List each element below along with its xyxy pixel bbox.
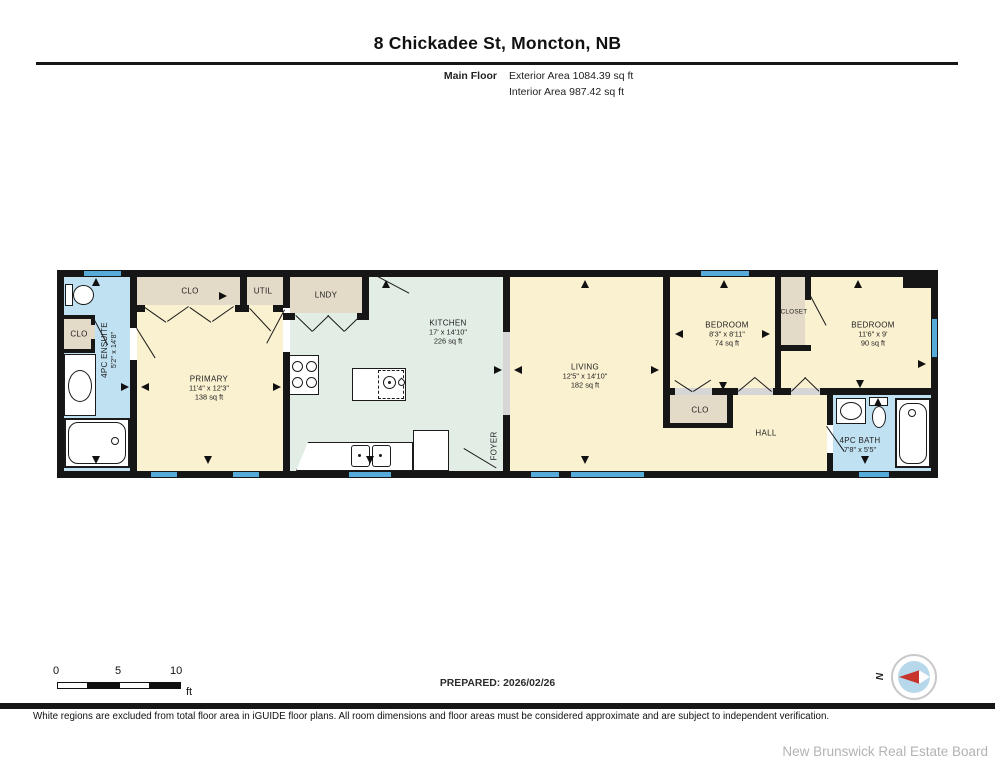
room-bath-dims: 7'8" x 5'5" — [840, 445, 881, 454]
door-threshold — [503, 332, 510, 415]
dimension-arrow-up — [854, 280, 862, 288]
dimension-arrow-down — [719, 382, 727, 390]
room-label-ensuite: 4PC ENSUITE5'2" x 14'8" — [100, 322, 118, 378]
fixture — [358, 454, 361, 457]
fixture — [73, 285, 94, 305]
wall — [820, 388, 931, 395]
floor-label: Main Floor — [444, 70, 497, 82]
room-primary-name: PRIMARY — [189, 375, 229, 384]
wall — [775, 345, 811, 351]
window — [83, 270, 122, 277]
window — [530, 471, 560, 478]
room-bath-name: 4PC BATH — [840, 436, 881, 445]
disclaimer-text: White regions are excluded from total fl… — [33, 711, 829, 722]
dimension-arrow-down — [366, 456, 374, 464]
fixture — [111, 437, 119, 445]
dimension-arrow-down — [856, 380, 864, 388]
dimension-arrow-down — [581, 456, 589, 464]
wall — [503, 277, 510, 332]
page-title: 8 Chickadee St, Moncton, NB — [0, 33, 995, 54]
north-label: N — [875, 673, 886, 680]
room-label-bedroom1: BEDROOM8'3" x 8'11"74 sq ft — [705, 321, 748, 348]
wall — [235, 305, 249, 312]
room-living-name: LIVING — [563, 363, 608, 372]
dimension-arrow-down — [204, 456, 212, 464]
room-living-area: 182 sq ft — [563, 381, 608, 390]
dimension-arrow-right — [121, 383, 129, 391]
wall — [903, 270, 938, 288]
floor-plan: 4PC ENSUITE5'2" x 14'8"CLOCLOUTILPRIMARY… — [57, 270, 938, 478]
wall — [137, 305, 145, 312]
room-primary-dims: 11'4" x 12'3" — [189, 384, 229, 393]
footer-bar — [0, 703, 995, 709]
room-ensuite-dims: 5'2" x 14'8" — [109, 322, 118, 378]
brand-text: New Brunswick Real Estate Board — [782, 744, 988, 759]
dimension-arrow-up — [581, 280, 589, 288]
room-bedroom1-name: BEDROOM — [705, 321, 748, 330]
dimension-arrow-right — [494, 366, 502, 374]
room-kitchen-area: 226 sq ft — [429, 337, 467, 346]
prepared-date: PREPARED: 2026/02/26 — [0, 678, 995, 689]
header-divider — [36, 62, 958, 65]
room-ensuite-name: 4PC ENSUITE — [100, 322, 109, 378]
exterior-area: Exterior Area 1084.39 sq ft — [509, 70, 633, 82]
fixture — [68, 370, 92, 402]
dimension-arrow-right — [762, 330, 770, 338]
fixture — [908, 409, 916, 417]
wall — [827, 395, 833, 425]
wall — [503, 415, 510, 471]
dimension-arrow-up — [92, 278, 100, 286]
fixture — [388, 381, 391, 384]
wall — [283, 277, 290, 308]
fixture — [306, 377, 317, 388]
wall — [663, 277, 670, 428]
fixture — [306, 361, 317, 372]
room-foyer-name: FOYER — [490, 431, 499, 460]
room-bedroom1-dims: 8'3" x 8'11" — [705, 330, 748, 339]
room-kitchen-dims: 17' x 14'10" — [429, 328, 467, 337]
wall — [273, 305, 283, 312]
room-kitchen-name: KITCHEN — [429, 319, 467, 328]
compass-needle-icon — [899, 670, 920, 684]
room-label-clo_primary: CLO — [181, 287, 198, 296]
page: { "header": { "title": "8 Chickadee St, … — [0, 0, 995, 768]
room-label-kitchen: KITCHEN17' x 14'10"226 sq ft — [429, 319, 467, 346]
dimension-arrow-right — [219, 292, 227, 300]
dimension-arrow-up — [382, 280, 390, 288]
interior-area: Interior Area 987.42 sq ft — [509, 86, 624, 98]
scale-tick-10: 10 — [170, 665, 182, 677]
room-label-foyer: FOYER — [490, 431, 499, 460]
room-living-dims: 12'5" x 14'10" — [563, 372, 608, 381]
room-primary-area: 138 sq ft — [189, 393, 229, 402]
room-label-clo_hall: CLO — [691, 406, 708, 415]
wall — [240, 277, 247, 305]
fixture — [872, 406, 886, 428]
room-label-hall: HALL — [755, 429, 776, 438]
window — [931, 318, 938, 358]
room-label-lndy: LNDY — [315, 291, 338, 300]
dimension-arrow-down — [861, 456, 869, 464]
room-util-name: UTIL — [254, 287, 273, 296]
dimension-arrow-up — [874, 398, 882, 406]
wall — [91, 339, 95, 353]
room-bedroom2-dims: 11'6" x 9' — [851, 330, 894, 339]
dimension-arrow-down — [92, 456, 100, 464]
dimension-arrow-left — [514, 366, 522, 374]
wall — [57, 270, 64, 478]
wall — [57, 270, 938, 277]
room-clo_primary-name: CLO — [181, 287, 198, 296]
wall — [130, 277, 137, 328]
wall — [283, 352, 290, 471]
wall — [283, 313, 295, 320]
fixture — [292, 377, 303, 388]
room-label-bath: 4PC BATH7'8" x 5'5" — [840, 436, 881, 454]
fixture — [379, 454, 382, 457]
wall — [130, 360, 137, 471]
scale-tick-0: 0 — [53, 665, 59, 677]
dimension-arrow-right — [273, 383, 281, 391]
room-hall-name: HALL — [755, 429, 776, 438]
fixture — [413, 430, 449, 471]
room-label-util: UTIL — [254, 287, 273, 296]
dimension-arrow-left — [141, 383, 149, 391]
room-lndy-name: LNDY — [315, 291, 338, 300]
dimension-arrow-right — [918, 360, 926, 368]
wall — [663, 388, 675, 395]
room-label-closet: CLOSET — [781, 309, 808, 316]
scale-tick-5: 5 — [115, 665, 121, 677]
window — [348, 471, 392, 478]
room-closet-name: CLOSET — [781, 309, 808, 316]
room-label-primary: PRIMARY11'4" x 12'3"138 sq ft — [189, 375, 229, 402]
window — [858, 471, 890, 478]
room-bedroom2-name: BEDROOM — [851, 321, 894, 330]
room-clo_ensuite-name: CLO — [70, 330, 87, 339]
window — [150, 471, 178, 478]
dimension-arrow-left — [675, 330, 683, 338]
room-bedroom1-area: 74 sq ft — [705, 339, 748, 348]
wall — [57, 471, 938, 478]
wall — [931, 270, 938, 478]
wall — [663, 423, 733, 428]
dimension-arrow-right — [651, 366, 659, 374]
compass-needle-tail-icon — [919, 670, 930, 684]
fixture — [292, 361, 303, 372]
room-label-clo_ensuite: CLO — [70, 330, 87, 339]
window — [700, 270, 750, 277]
wall — [773, 388, 791, 395]
room-clo_hall-name: CLO — [691, 406, 708, 415]
room-label-living: LIVING12'5" x 14'10"182 sq ft — [563, 363, 608, 390]
fixture — [65, 284, 73, 306]
dimension-arrow-up — [720, 280, 728, 288]
wall — [775, 277, 781, 388]
door-opening — [130, 328, 137, 360]
fixture — [840, 402, 862, 420]
window — [232, 471, 260, 478]
wall — [827, 453, 833, 471]
room-label-bedroom2: BEDROOM11'6" x 9'90 sq ft — [851, 321, 894, 348]
window — [570, 471, 645, 478]
room-bedroom2-area: 90 sq ft — [851, 339, 894, 348]
